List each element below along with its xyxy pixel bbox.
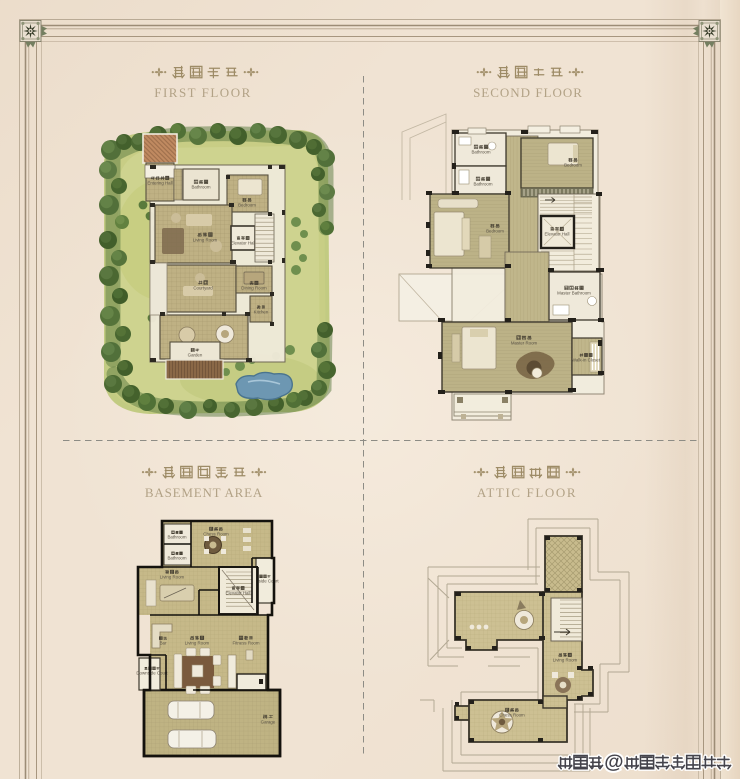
svg-text:Master Room: Master Room xyxy=(511,341,538,346)
svg-text:Garden: Garden xyxy=(188,353,203,358)
svg-text:Dining Room: Dining Room xyxy=(241,286,267,291)
svg-text:Elevator Hall: Elevator Hall xyxy=(226,591,251,596)
svg-text:Entering Hall: Entering Hall xyxy=(147,181,172,186)
svg-text:Bathroom: Bathroom xyxy=(471,150,490,155)
svg-text:Living Room: Living Room xyxy=(193,238,218,243)
svg-text:Bedroom: Bedroom xyxy=(564,163,582,168)
svg-text:Living Room: Living Room xyxy=(553,658,578,663)
svg-text:Chess Room: Chess Room xyxy=(499,713,525,718)
svg-text:Elevator Hall: Elevator Hall xyxy=(545,232,570,237)
svg-text:Downside Court: Downside Court xyxy=(136,671,168,676)
svg-text:Master Bathroom: Master Bathroom xyxy=(557,291,591,296)
svg-text:Courtyard: Courtyard xyxy=(193,286,213,291)
svg-text:Living Room: Living Room xyxy=(160,575,185,580)
svg-text:Bedroom: Bedroom xyxy=(238,203,256,208)
svg-text:@: @ xyxy=(604,751,623,773)
svg-text:Bedroom: Bedroom xyxy=(486,229,504,234)
svg-text:Bathroom: Bathroom xyxy=(167,535,186,540)
svg-text:Bar: Bar xyxy=(160,641,167,646)
svg-text:Walk-in Closet: Walk-in Closet xyxy=(572,358,601,363)
svg-text:Chess Room: Chess Room xyxy=(203,532,229,537)
svg-text:Bathroom: Bathroom xyxy=(167,556,186,561)
svg-text:Elevator Hall: Elevator Hall xyxy=(231,241,256,246)
svg-text:Garage: Garage xyxy=(261,720,276,725)
svg-text:Kitchen: Kitchen xyxy=(254,310,269,315)
svg-text:Bathroom: Bathroom xyxy=(473,182,492,187)
svg-text:Bathroom: Bathroom xyxy=(191,185,210,190)
svg-text:Living Room: Living Room xyxy=(185,641,210,646)
svg-text:Fitness Room: Fitness Room xyxy=(232,641,259,646)
